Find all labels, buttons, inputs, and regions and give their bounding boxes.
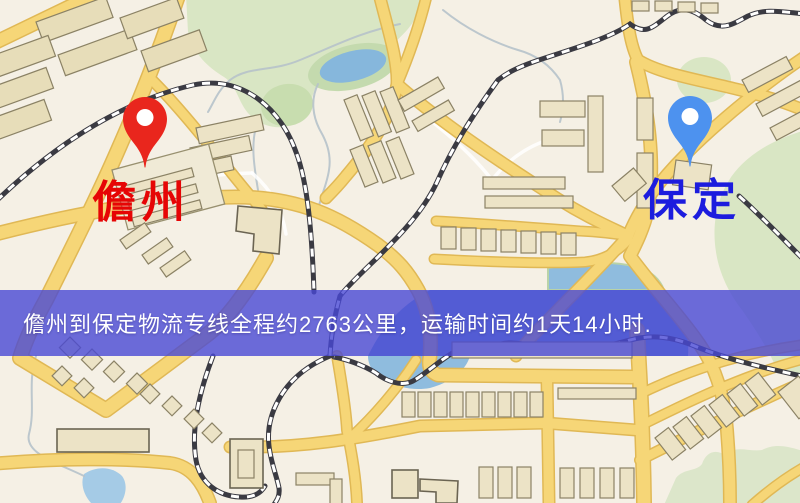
- origin-city-label: 儋州: [92, 181, 190, 225]
- route-info-text: 儋州到保定物流专线全程约2763公里，运输时间约1天14小时.: [0, 307, 652, 339]
- map-artwork: [0, 0, 800, 503]
- origin-pin-icon: [122, 96, 168, 172]
- map-canvas: 儋州 保定 儋州到保定物流专线全程约2763公里，运输时间约1天14小时.: [0, 0, 800, 503]
- destination-city-label: 保定: [643, 179, 741, 223]
- destination-pin-icon: [667, 95, 713, 171]
- route-info-banner: 儋州到保定物流专线全程约2763公里，运输时间约1天14小时.: [0, 290, 800, 356]
